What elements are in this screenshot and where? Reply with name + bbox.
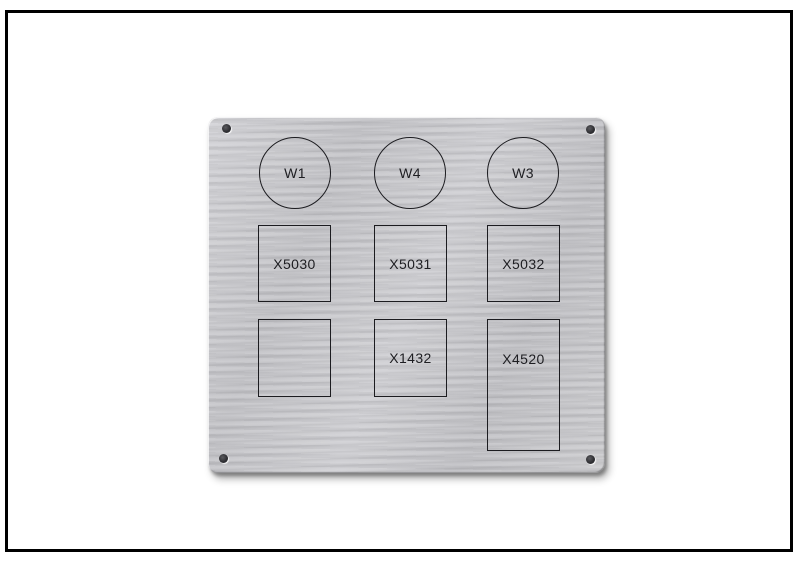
square-cutout-empty [258, 319, 331, 397]
screw-hole-bottom-left [219, 454, 228, 463]
screw-hole-bottom-right [586, 455, 595, 464]
screw-hole-top-left [222, 124, 231, 133]
square-cutout-label: X5030 [273, 256, 315, 272]
square-cutout-x5032: X5032 [487, 225, 560, 302]
screw-hole-top-right [586, 125, 595, 134]
metal-panel-plate: W1 W4 W3 X5030 X5031 X5032 X1432 X4520 [208, 117, 605, 473]
circle-cutout-w4: W4 [374, 137, 446, 209]
square-cutout-x1432: X1432 [374, 319, 447, 397]
circle-cutout-label: W4 [399, 165, 421, 181]
square-cutout-label: X1432 [389, 350, 431, 366]
rect-cutout-label: X4520 [488, 320, 559, 397]
circle-cutout-w1: W1 [259, 137, 331, 209]
square-cutout-x5031: X5031 [374, 225, 447, 302]
circle-cutout-w3: W3 [487, 137, 559, 209]
square-cutout-label: X5032 [502, 256, 544, 272]
square-cutout-label: X5031 [389, 256, 431, 272]
image-border-frame: W1 W4 W3 X5030 X5031 X5032 X1432 X4520 [5, 10, 793, 552]
circle-cutout-label: W1 [284, 165, 306, 181]
circle-cutout-label: W3 [512, 165, 534, 181]
rect-cutout-tall-x4520: X4520 [487, 319, 560, 451]
square-cutout-x5030: X5030 [258, 225, 331, 302]
